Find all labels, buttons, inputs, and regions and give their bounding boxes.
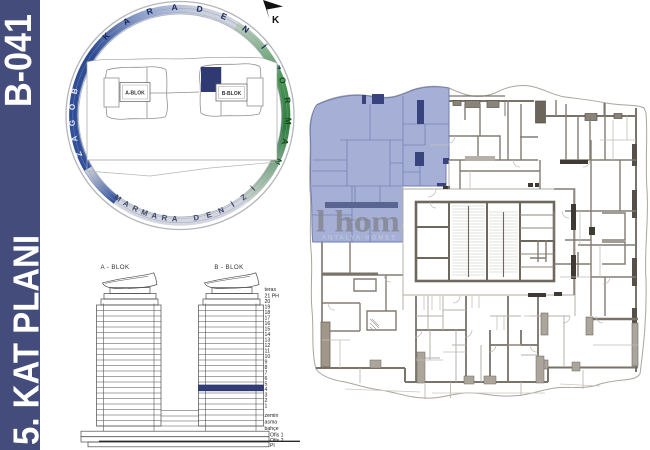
svg-text:K: K [272,15,280,26]
svg-text:asma: asma [265,420,278,426]
svg-text:D: D [193,213,200,223]
svg-text:zemin: zemin [265,413,279,419]
svg-text:A: A [172,214,178,223]
svg-text:bahçe: bahçe [265,426,279,432]
svg-text:A: A [70,135,80,143]
svg-text:A: A [171,2,178,12]
svg-text:A-BLOK: A-BLOK [125,91,145,97]
svg-text:B-BLOK: B-BLOK [222,91,242,97]
svg-text:teras: teras [265,287,277,293]
svg-text:B - BLOK: B - BLOK [214,264,244,271]
svg-text:Ğ: Ğ [68,120,77,127]
svg-text:Pl: Pl [270,443,275,449]
svg-text:R: R [145,6,154,17]
svg-text:R: R [282,97,293,104]
svg-text:A - BLOK: A - BLOK [101,264,130,271]
svg-text:E: E [205,210,212,220]
svg-text:5. KAT PLANI: 5. KAT PLANI [6,235,47,445]
svg-text:l hom: l hom [316,204,400,239]
svg-text:O: O [68,104,77,111]
svg-text:1: 1 [265,404,268,410]
svg-text:M: M [283,117,293,125]
svg-text:ANTALYA HOMES: ANTALYA HOMES [322,236,397,242]
svg-text:B-041: B-041 [0,14,40,107]
